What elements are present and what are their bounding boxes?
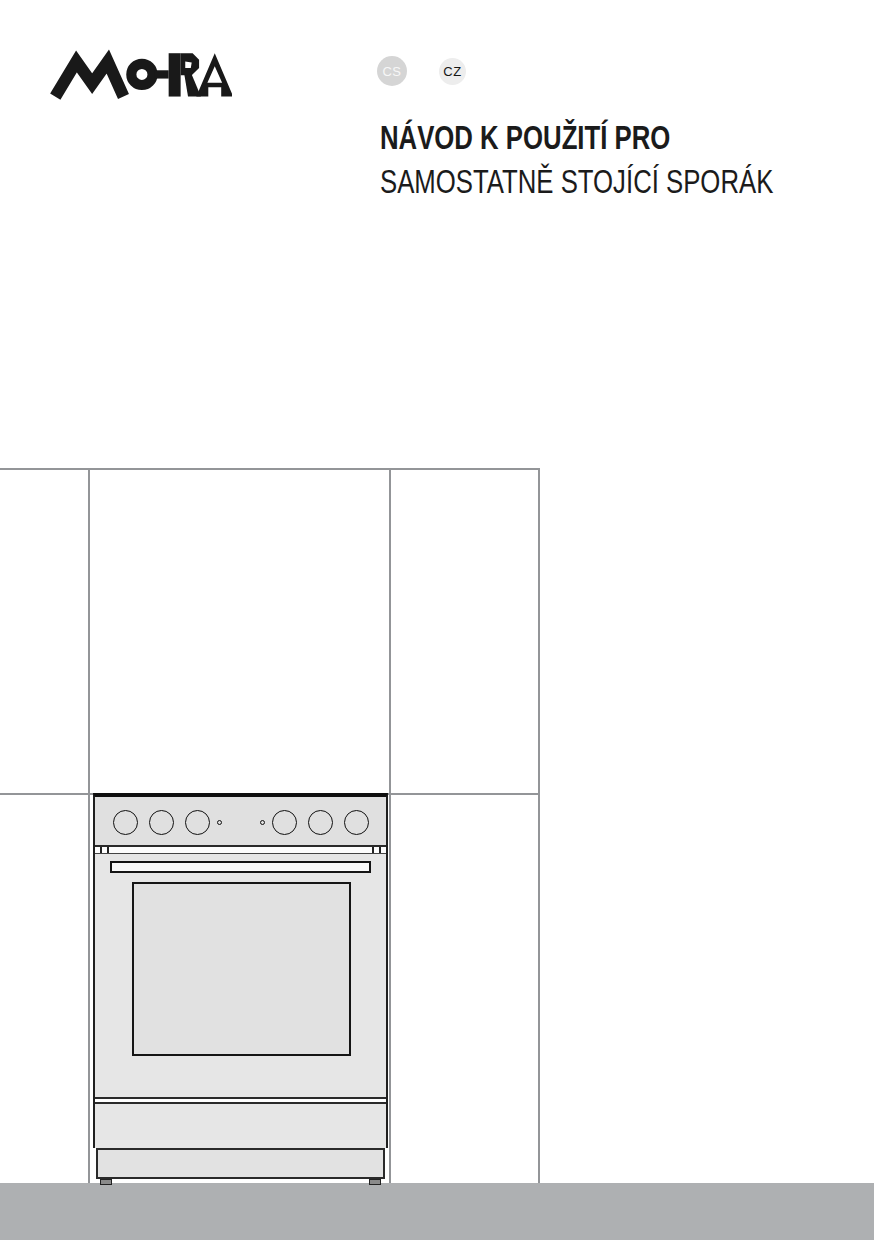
burner-knob-6 — [344, 810, 369, 835]
burner-knob-5 — [308, 810, 333, 835]
oven-door — [95, 854, 386, 1099]
indicator-dot-2 — [260, 820, 265, 825]
stove-foot-left — [100, 1179, 112, 1185]
oven-door-handle — [110, 861, 371, 873]
mora-logo-graphic — [50, 44, 232, 103]
burner-knob-4 — [272, 810, 297, 835]
burner-knob-2 — [149, 810, 174, 835]
cabinet-right-line — [538, 468, 540, 1183]
language-badge-cs-label: CS — [382, 64, 401, 79]
title-line-2: SAMOSTATNĚ STOJÍCÍ SPORÁK — [380, 160, 773, 204]
burner-knob-1 — [113, 810, 138, 835]
stove-foot-right — [369, 1179, 381, 1185]
oven-hinge-strip — [95, 847, 386, 854]
stove-illustration — [93, 793, 388, 1148]
hinge-mark-left-1 — [100, 847, 102, 853]
language-badge-cz-label: CZ — [443, 64, 461, 79]
document-title: NÁVOD K POUŽITÍ PRO SAMOSTATNĚ STOJÍCÍ S… — [380, 116, 874, 204]
floor-bar — [0, 1183, 874, 1240]
stove-plinth — [96, 1148, 385, 1179]
cabinet-middle-line — [389, 468, 391, 1183]
language-badge-cz: CZ — [439, 58, 466, 85]
hinge-mark-right-2 — [372, 847, 374, 853]
mora-logo: MORA — [50, 44, 232, 103]
stove-control-panel — [95, 797, 386, 847]
burner-knob-3 — [185, 810, 210, 835]
hinge-mark-right-1 — [379, 847, 381, 853]
oven-door-window — [132, 882, 351, 1056]
storage-drawer — [95, 1102, 386, 1148]
cabinet-top-line — [0, 468, 540, 470]
hinge-mark-left-2 — [107, 847, 109, 853]
cabinet-left-line — [88, 468, 90, 1183]
indicator-dot-1 — [217, 820, 222, 825]
title-line-1: NÁVOD K POUŽITÍ PRO — [380, 116, 773, 160]
language-badge-cs: CS — [377, 56, 407, 86]
